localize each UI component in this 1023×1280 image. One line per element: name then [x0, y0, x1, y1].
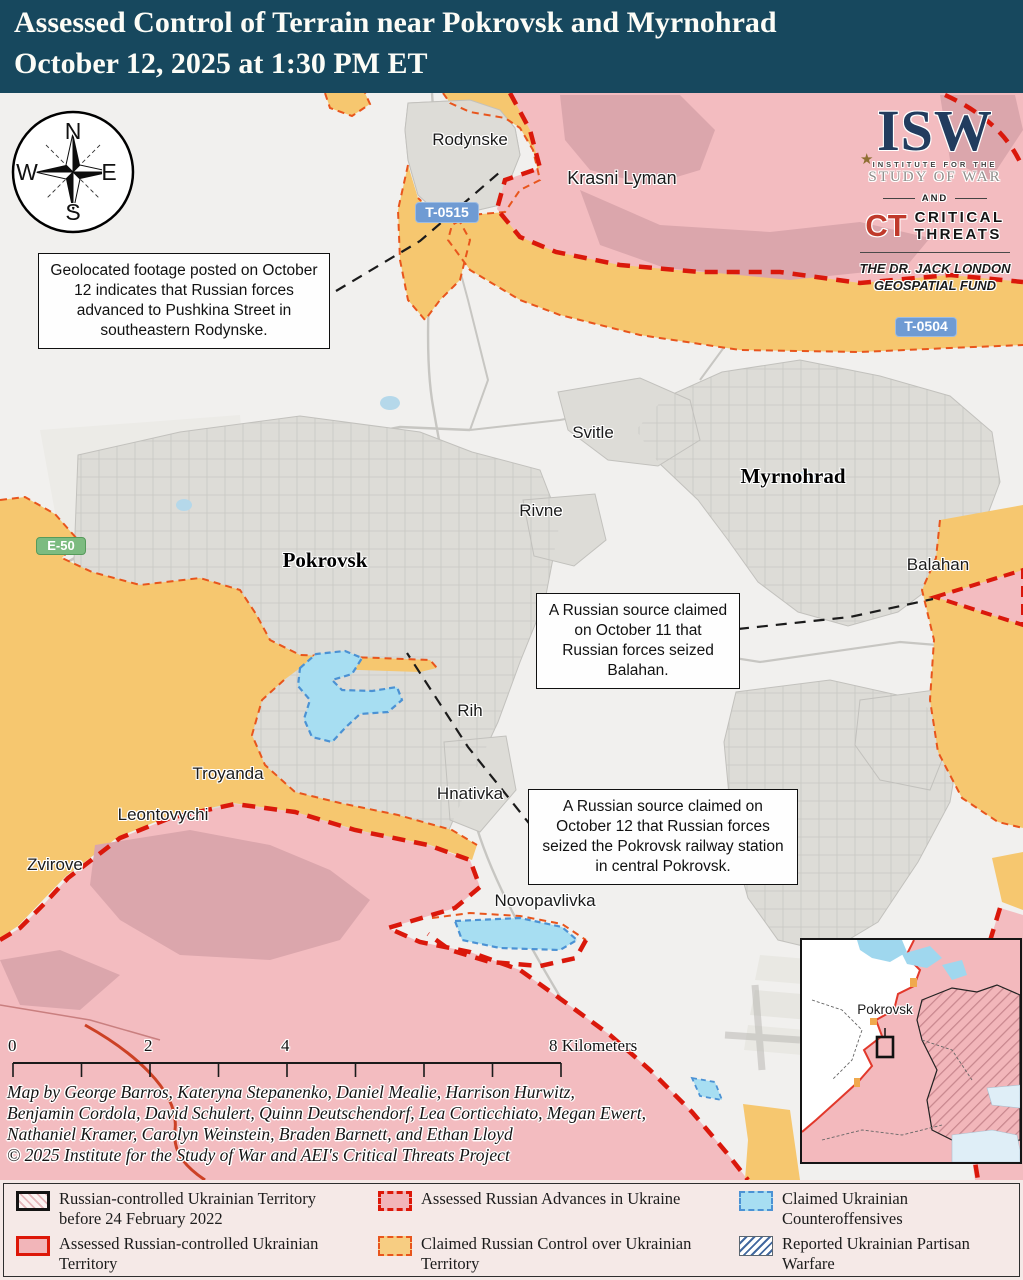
legend-item-claimed-control: Claimed Russian Control over Ukrainian T… [378, 1234, 711, 1274]
map-canvas: N E S W Rodynske Krasni Lyman Svitle Myr… [0, 93, 1023, 1180]
compass-east-label: E [98, 159, 120, 186]
and-separator: AND [850, 193, 1020, 204]
legend-frame: Russian-controlled Ukrainian Territory b… [3, 1183, 1020, 1277]
fund-line1: THE DR. JACK LONDON [850, 260, 1020, 277]
legend-label: Russian-controlled Ukrainian Territory b… [59, 1189, 359, 1229]
legend-label: Assessed Russian Advances in Ukraine [421, 1189, 711, 1211]
map-title-line2: October 12, 2025 at 1:30 PM ET [14, 47, 428, 81]
compass-west-label: W [16, 159, 38, 186]
place-label-svitle: Svitle [553, 423, 633, 443]
credits-line4: © 2025 Institute for the Study of War an… [7, 1145, 787, 1166]
critical-threats-logo: CT CRITICAL THREATS [850, 209, 1020, 243]
legend-swatch-prewar-territory [16, 1191, 50, 1211]
separator-line [883, 198, 915, 199]
credits-line3: Nathaniel Kramer, Carolyn Weinstein, Bra… [7, 1124, 787, 1145]
callout-balahan-claim: A Russian source claimed on October 11 t… [536, 593, 740, 689]
legend-swatch-claimed-control [378, 1236, 412, 1256]
map-title-bar: Assessed Control of Terrain near Pokrovs… [0, 0, 1023, 93]
and-word: AND [922, 193, 949, 204]
isw-map-screenshot: Assessed Control of Terrain near Pokrovs… [0, 0, 1023, 1280]
place-label-zvirove: Zvirove [5, 855, 105, 875]
map-title-line1: Assessed Control of Terrain near Pokrovs… [14, 6, 777, 40]
place-label-hnativka: Hnativka [410, 784, 530, 804]
inset-pokrovsk-label: Pokrovsk [825, 1002, 945, 1017]
scale-label-4: 4 [281, 1036, 290, 1056]
scale-label-2: 2 [144, 1036, 153, 1056]
place-label-myrnohrad: Myrnohrad [713, 464, 873, 489]
legend-label: Claimed Ukrainian Counteroffensives [782, 1189, 1022, 1229]
legend-label: Assessed Russian-controlled Ukrainian Te… [59, 1234, 359, 1274]
place-label-rodynske: Rodynske [408, 130, 532, 150]
isw-study-of-war-line: STUDY OF WAR [850, 169, 1020, 186]
legend-item-counteroffensives: Claimed Ukrainian Counteroffensives [739, 1189, 1022, 1229]
isw-ct-logo-block: ISW ★ INSTITUTE FOR THE STUDY OF WAR AND… [850, 103, 1020, 294]
legend-swatch-advances [378, 1191, 412, 1211]
callout-rodynske-advance: Geolocated footage posted on October 12 … [38, 253, 330, 349]
isw-institute-line: INSTITUTE FOR THE [850, 160, 1020, 169]
scale-label-0: 0 [8, 1036, 17, 1056]
isw-logo: ISW [850, 103, 1020, 159]
road-sign-t0515: T-0515 [415, 202, 479, 223]
logo-divider [860, 252, 1010, 253]
callout-railway-claim: A Russian source claimed on October 12 t… [528, 789, 798, 885]
credits-line1: Map by George Barros, Kateryna Stepanenk… [7, 1082, 787, 1103]
scale-label-8km: 8 Kilometers [549, 1036, 637, 1056]
threats-word: THREATS [915, 226, 1005, 243]
place-label-pokrovsk: Pokrovsk [245, 548, 405, 573]
legend-item-prewar: Russian-controlled Ukrainian Territory b… [16, 1189, 359, 1229]
legend-item-assessed-control: Assessed Russian-controlled Ukrainian Te… [16, 1234, 359, 1274]
legend-label: Reported Ukrainian Partisan Warfare [782, 1234, 1022, 1274]
road-sign-e50: E-50 [36, 537, 86, 555]
legend-item-partisan: Reported Ukrainian Partisan Warfare [739, 1234, 1022, 1274]
place-label-leontovychi: Leontovychi [93, 805, 233, 825]
place-label-novopavlivka: Novopavlivka [475, 891, 615, 911]
legend-label: Claimed Russian Control over Ukrainian T… [421, 1234, 711, 1274]
ct-monogram: CT [865, 211, 906, 241]
map-legend: Russian-controlled Ukrainian Territory b… [0, 1180, 1023, 1280]
legend-swatch-counteroffensives [739, 1191, 773, 1211]
isw-star-icon: ★ [860, 150, 873, 168]
inset-locator-map: Pokrovsk [800, 938, 1022, 1164]
place-label-rih: Rih [430, 701, 510, 721]
inset-map-graphic [802, 940, 1020, 1162]
place-label-balahan: Balahan [878, 555, 998, 575]
credits-line2: Benjamin Cordola, David Schulert, Quinn … [7, 1103, 787, 1124]
road-sign-t0504: T-0504 [895, 317, 957, 337]
compass-north-label: N [62, 118, 84, 145]
legend-swatch-assessed-control [16, 1236, 50, 1256]
separator-line [955, 198, 987, 199]
legend-item-advances: Assessed Russian Advances in Ukraine [378, 1189, 711, 1211]
critical-word: CRITICAL [915, 209, 1005, 226]
place-label-troyanda: Troyanda [168, 764, 288, 784]
place-label-krasni-lyman: Krasni Lyman [540, 168, 704, 189]
place-label-rivne: Rivne [501, 501, 581, 521]
compass-south-label: S [62, 199, 84, 226]
fund-line2: GEOSPATIAL FUND [850, 277, 1020, 294]
legend-swatch-partisan [739, 1236, 773, 1256]
